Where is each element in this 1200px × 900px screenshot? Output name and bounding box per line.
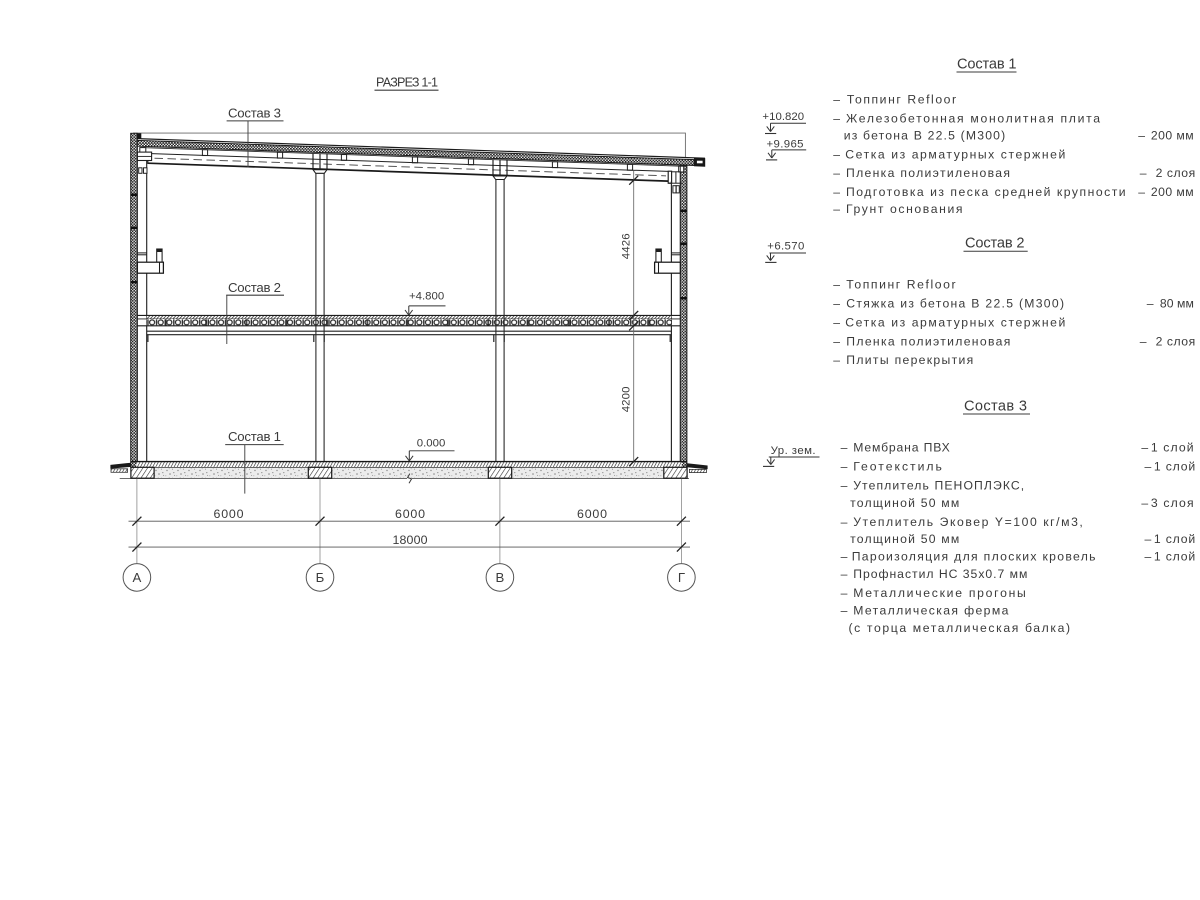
svg-text:Состав 1: Состав 1 bbox=[228, 429, 281, 444]
svg-text:+10.820: +10.820 bbox=[762, 111, 804, 123]
svg-text:Состав 2: Состав 2 bbox=[965, 236, 1025, 252]
svg-text:толщиной 50 мм: толщиной 50 мм bbox=[850, 496, 959, 510]
svg-text:Геотекстиль: Геотекстиль bbox=[853, 459, 942, 473]
svg-text:–: – bbox=[1147, 297, 1154, 311]
svg-text:1 слой: 1 слой bbox=[1154, 550, 1195, 564]
svg-text:–: – bbox=[841, 459, 848, 473]
svg-text:–: – bbox=[841, 586, 848, 600]
svg-text:Состав 1: Состав 1 bbox=[957, 57, 1017, 73]
svg-text:Г: Г bbox=[678, 570, 685, 585]
svg-text:Подготовка из песка средней кр: Подготовка из песка средней крупности bbox=[846, 185, 1126, 199]
svg-text:Состав 2: Состав 2 bbox=[228, 280, 281, 295]
svg-text:Утеплитель Эковер Y=100 кг/м3,: Утеплитель Эковер Y=100 кг/м3, bbox=[853, 515, 1083, 529]
svg-text:80 мм: 80 мм bbox=[1160, 297, 1194, 311]
svg-text:6000: 6000 bbox=[395, 507, 425, 521]
svg-text:Грунт основания: Грунт основания bbox=[846, 202, 963, 216]
svg-text:–: – bbox=[833, 334, 840, 348]
svg-text:–: – bbox=[841, 515, 848, 529]
svg-text:Состав 3: Состав 3 bbox=[228, 105, 281, 120]
svg-text:Пароизоляция для плоских крове: Пароизоляция для плоских кровель bbox=[852, 550, 1096, 564]
svg-text:–: – bbox=[1141, 440, 1148, 454]
svg-text:–: – bbox=[1140, 334, 1147, 348]
svg-text:4426: 4426 bbox=[621, 233, 633, 259]
svg-text:+6.570: +6.570 bbox=[767, 241, 804, 253]
svg-text:–: – bbox=[841, 550, 848, 564]
svg-text:Плиты перекрытия: Плиты перекрытия bbox=[846, 353, 973, 367]
svg-text:3 слоя: 3 слоя bbox=[1151, 496, 1194, 510]
svg-text:–: – bbox=[841, 567, 848, 581]
svg-text:–: – bbox=[833, 166, 840, 180]
svg-text:Металлическая ферма: Металлическая ферма bbox=[853, 603, 1008, 617]
svg-text:РАЗРЕЗ 1-1: РАЗРЕЗ 1-1 bbox=[376, 76, 438, 90]
svg-text:–: – bbox=[833, 111, 840, 125]
svg-text:–: – bbox=[841, 440, 848, 454]
svg-text:Утеплитель ПЕНОПЛЭКС,: Утеплитель ПЕНОПЛЭКС, bbox=[853, 478, 1024, 492]
svg-text:+4.800: +4.800 bbox=[409, 291, 444, 303]
svg-text:толщиной 50 мм: толщиной 50 мм bbox=[850, 532, 959, 546]
svg-text:–: – bbox=[833, 185, 840, 199]
svg-text:+9.965: +9.965 bbox=[767, 139, 804, 151]
svg-text:–: – bbox=[841, 478, 848, 492]
svg-text:200 мм: 200 мм bbox=[1151, 185, 1194, 199]
svg-text:Стяжка из бетона В 22.5 (М300): Стяжка из бетона В 22.5 (М300) bbox=[846, 297, 1064, 311]
svg-text:2 слоя: 2 слоя bbox=[1156, 334, 1196, 348]
svg-text:–: – bbox=[1145, 459, 1152, 473]
svg-text:(с торца металлическая балка): (с торца металлическая балка) bbox=[849, 621, 1071, 635]
svg-text:1 слой: 1 слой bbox=[1154, 459, 1195, 473]
svg-text:18000: 18000 bbox=[393, 533, 428, 547]
svg-text:Состав 3: Состав 3 bbox=[964, 398, 1027, 414]
svg-text:–: – bbox=[841, 603, 848, 617]
svg-text:А: А bbox=[133, 570, 142, 585]
svg-text:1 слой: 1 слой bbox=[1154, 532, 1195, 546]
svg-text:–: – bbox=[833, 147, 840, 161]
svg-text:из бетона В 22.5 (М300): из бетона В 22.5 (М300) bbox=[844, 128, 1006, 142]
svg-text:Топпинг Refloor: Топпинг Refloor bbox=[847, 93, 956, 107]
svg-text:–: – bbox=[1141, 496, 1148, 510]
svg-text:Сетка из арматурных стержней: Сетка из арматурных стержней bbox=[845, 315, 1065, 329]
svg-text:–: – bbox=[833, 202, 840, 216]
svg-text:Железобетонная монолитная пли: Железобетонная монолитная плита bbox=[846, 111, 1100, 125]
svg-text:–: – bbox=[833, 315, 840, 329]
svg-text:–: – bbox=[833, 353, 840, 367]
svg-text:–: – bbox=[1145, 532, 1152, 546]
svg-text:Б: Б bbox=[316, 570, 325, 585]
svg-text:Пленка полиэтиленовая: Пленка полиэтиленовая bbox=[846, 166, 1010, 180]
svg-text:–: – bbox=[833, 93, 840, 107]
svg-text:В: В bbox=[496, 570, 505, 585]
svg-text:1 слой: 1 слой bbox=[1151, 440, 1194, 454]
svg-text:Металлические прогоны: Металлические прогоны bbox=[853, 586, 1026, 600]
svg-text:–: – bbox=[1140, 166, 1147, 180]
svg-text:Профнастил НС 35х0.7 мм: Профнастил НС 35х0.7 мм bbox=[853, 567, 1027, 581]
svg-text:200 мм: 200 мм bbox=[1151, 128, 1194, 142]
svg-text:Сетка из арматурных стержней: Сетка из арматурных стержней bbox=[845, 147, 1065, 161]
svg-text:–: – bbox=[1145, 550, 1152, 564]
svg-text:0.000: 0.000 bbox=[417, 438, 446, 450]
svg-text:–: – bbox=[833, 278, 840, 292]
svg-text:6000: 6000 bbox=[214, 507, 244, 521]
svg-text:6000: 6000 bbox=[577, 507, 607, 521]
svg-text:Топпинг Refloor: Топпинг Refloor bbox=[846, 278, 955, 292]
svg-text:4200: 4200 bbox=[621, 387, 633, 413]
svg-text:–: – bbox=[833, 297, 840, 311]
svg-text:Пленка полиэтиленовая: Пленка полиэтиленовая bbox=[846, 334, 1010, 348]
svg-text:2 слоя: 2 слоя bbox=[1156, 166, 1196, 180]
svg-text:Ур. зем.: Ур. зем. bbox=[771, 445, 816, 457]
svg-text:–: – bbox=[1138, 128, 1145, 142]
svg-text:–: – bbox=[1138, 185, 1145, 199]
svg-text:Мембрана ПВХ: Мембрана ПВХ bbox=[853, 440, 950, 454]
